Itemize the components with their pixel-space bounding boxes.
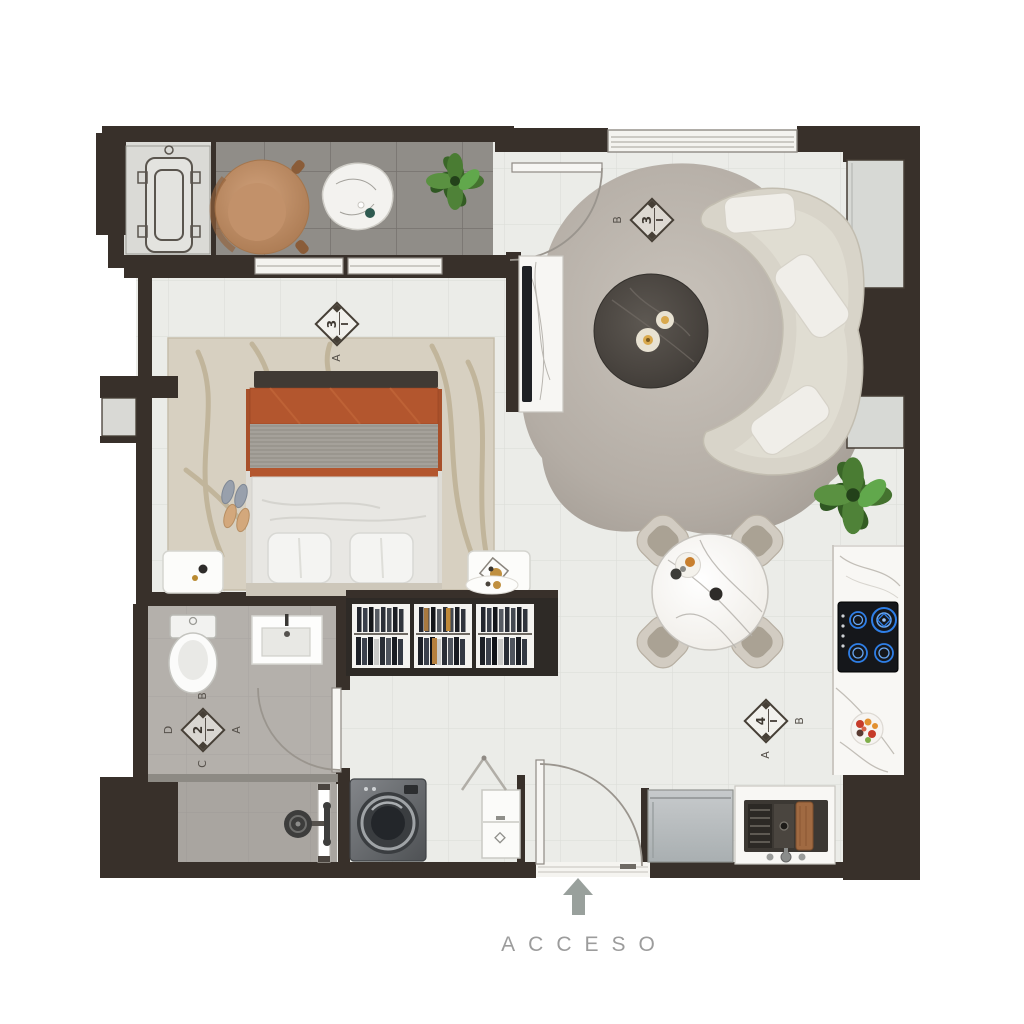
marker-diamond-icon: 2 bbox=[180, 707, 225, 752]
elevation-marker-bathroom: B D A C 2 bbox=[187, 714, 219, 746]
decor-tray bbox=[466, 576, 518, 594]
toilet bbox=[169, 615, 217, 693]
washing-machine bbox=[350, 779, 426, 861]
laundry-cabinet bbox=[482, 790, 520, 858]
marker-letter bbox=[296, 317, 310, 331]
marker-letter: B bbox=[196, 689, 210, 703]
access-arrow-icon bbox=[438, 878, 718, 915]
bed bbox=[246, 371, 442, 596]
kitchen-sink bbox=[735, 786, 835, 864]
floor-plan-canvas: A 3 B 3 B D A C 2 B A 4 ACCESO bbox=[0, 0, 1024, 1024]
floor-plan-drawing bbox=[0, 0, 1024, 1024]
marker-letter: D bbox=[162, 723, 176, 737]
sofa-cushion bbox=[724, 192, 797, 234]
fruit-bowl bbox=[851, 713, 883, 745]
wardrobe bbox=[346, 590, 558, 676]
marker-letter bbox=[330, 283, 344, 297]
marker-number: 3 bbox=[641, 216, 653, 224]
refrigerator bbox=[648, 790, 733, 862]
marker-letter: A bbox=[759, 748, 773, 762]
nightstand-left bbox=[163, 551, 223, 593]
elevation-marker-bedroom-window: A 3 bbox=[321, 308, 353, 340]
marker-letter: B bbox=[793, 714, 807, 728]
vanity-sink bbox=[252, 614, 322, 664]
elevation-marker-dining: B A 4 bbox=[750, 705, 782, 737]
marker-diamond-icon: 3 bbox=[629, 197, 674, 242]
coffee-table bbox=[594, 274, 708, 388]
access-indicator: ACCESO bbox=[438, 878, 718, 957]
marker-letter bbox=[759, 680, 773, 694]
marker-letter: B bbox=[611, 213, 625, 227]
tv bbox=[522, 266, 532, 402]
marker-number: 4 bbox=[755, 717, 767, 725]
dining-set bbox=[630, 508, 789, 674]
marker-number: 3 bbox=[326, 320, 338, 328]
marker-letter bbox=[725, 714, 739, 728]
tv-console bbox=[519, 256, 563, 412]
bedroom-balcony-window bbox=[255, 258, 442, 274]
elevation-marker-living-window: B 3 bbox=[636, 204, 668, 236]
marker-number: 2 bbox=[192, 726, 204, 734]
dining-table bbox=[652, 534, 768, 650]
marker-letter: A bbox=[230, 723, 244, 737]
cooktop bbox=[838, 602, 898, 672]
access-label: ACCESO bbox=[438, 933, 718, 957]
living-top-window bbox=[608, 130, 797, 152]
marker-letter bbox=[645, 247, 659, 261]
marker-letter bbox=[364, 317, 378, 331]
bedroom-left-window bbox=[102, 398, 136, 436]
marker-letter bbox=[679, 213, 693, 227]
marker-diamond-icon: 4 bbox=[743, 698, 788, 743]
marker-letter bbox=[645, 179, 659, 193]
side-table bbox=[323, 163, 393, 229]
marker-letter: A bbox=[330, 351, 344, 365]
marker-diamond-icon: 3 bbox=[314, 301, 359, 346]
marker-letter: C bbox=[196, 757, 210, 771]
bench bbox=[254, 371, 438, 388]
